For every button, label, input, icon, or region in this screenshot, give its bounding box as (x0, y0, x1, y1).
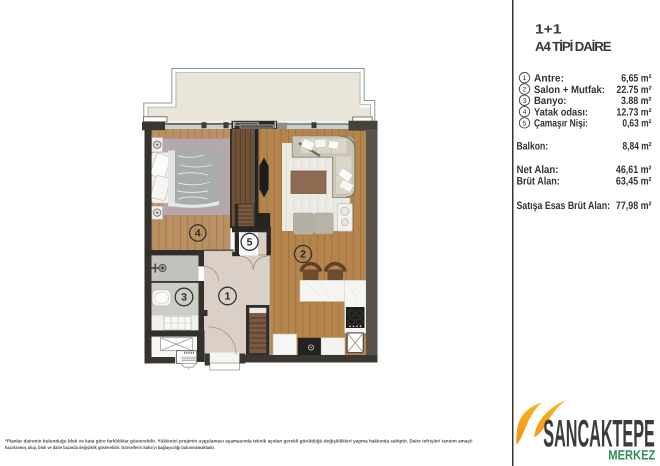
svg-text:Yatak odası:: Yatak odası: (534, 106, 588, 118)
svg-text:3: 3 (181, 292, 187, 304)
svg-text:1+1: 1+1 (535, 22, 562, 37)
svg-text:hazırlanmış olup, blok ve dair: hazırlanmış olup, blok ve daire bazında … (5, 445, 215, 450)
svg-text:Banyo:: Banyo: (534, 95, 567, 107)
svg-text:Salon + Mutfak:: Salon + Mutfak: (534, 84, 605, 96)
svg-text:4: 4 (195, 228, 201, 240)
svg-text:5: 5 (247, 236, 253, 248)
svg-text:12.73 m²: 12.73 m² (617, 106, 652, 118)
svg-text:2: 2 (523, 87, 527, 94)
svg-text:Balkon:: Balkon: (517, 141, 549, 153)
svg-text:8,84 m²: 8,84 m² (623, 141, 652, 153)
svg-text:77,98 m²: 77,98 m² (616, 200, 652, 212)
svg-text:46,61 m²: 46,61 m² (616, 164, 652, 176)
svg-text:MERKEZ: MERKEZ (608, 448, 655, 463)
svg-text:3.88 m²: 3.88 m² (621, 95, 652, 107)
svg-text:Çamaşır Nişi:: Çamaşır Nişi: (534, 118, 588, 130)
svg-text:A4 TİPİ DAİRE: A4 TİPİ DAİRE (535, 39, 612, 54)
svg-text:2: 2 (300, 249, 306, 261)
svg-text:1: 1 (225, 291, 231, 303)
svg-text:Satışa Esas Brüt Alan:: Satışa Esas Brüt Alan: (517, 200, 611, 212)
svg-text:63,45 m²: 63,45 m² (616, 175, 652, 187)
svg-text:22.75 m²: 22.75 m² (617, 84, 652, 96)
svg-text:6,65 m²: 6,65 m² (621, 73, 652, 85)
svg-text:Net Alan:: Net Alan: (517, 164, 559, 176)
svg-text:*Planlar dairenin bulunduğu bl: *Planlar dairenin bulunduğu blok ve kata… (5, 439, 473, 444)
svg-text:Brüt Alan:: Brüt Alan: (517, 175, 560, 187)
svg-text:Antre:: Antre: (534, 73, 564, 85)
svg-text:3: 3 (523, 98, 527, 105)
svg-text:4: 4 (523, 109, 527, 116)
svg-text:0,63 m²: 0,63 m² (622, 118, 652, 130)
svg-text:1: 1 (523, 75, 527, 82)
svg-text:5: 5 (523, 120, 527, 127)
